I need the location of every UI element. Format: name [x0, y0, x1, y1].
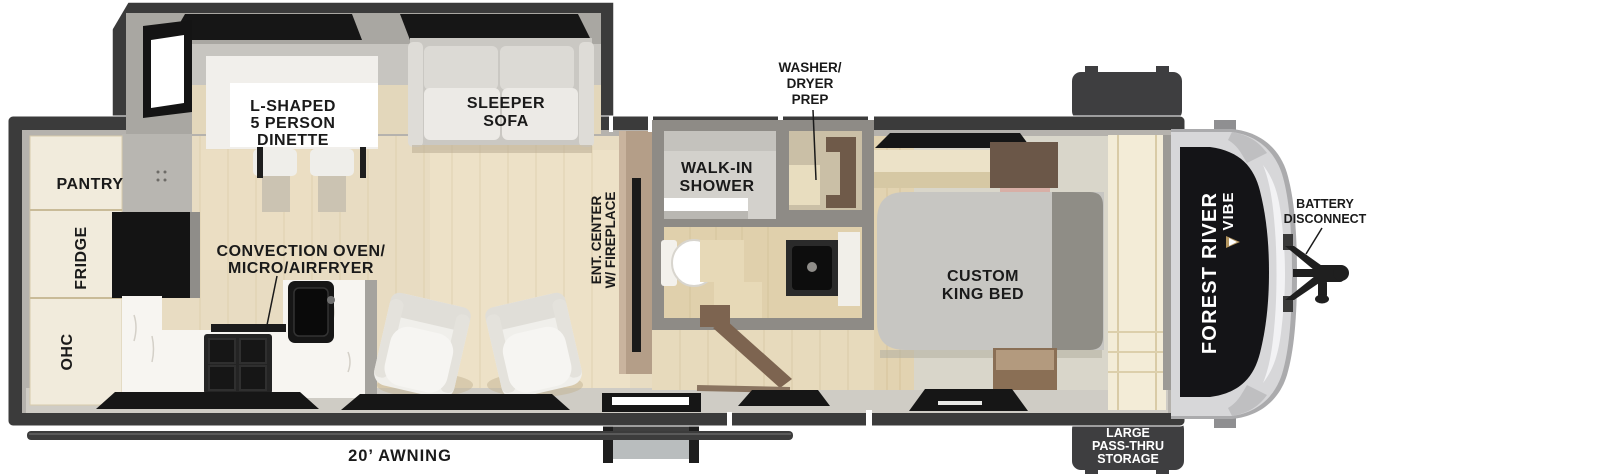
svg-text:DINETTE: DINETTE: [257, 132, 329, 149]
svg-text:DISCONNECT: DISCONNECT: [1284, 212, 1367, 226]
svg-text:VIBE: VIBE: [1220, 191, 1237, 230]
svg-text:PREP: PREP: [792, 92, 829, 107]
svg-text:SHOWER: SHOWER: [680, 178, 755, 195]
svg-text:PANTRY: PANTRY: [57, 176, 124, 193]
svg-text:DRYER: DRYER: [787, 76, 834, 91]
svg-text:WASHER/: WASHER/: [778, 60, 841, 75]
svg-text:LARGE: LARGE: [1106, 426, 1150, 440]
svg-text:FOREST RIVER: FOREST RIVER: [1199, 192, 1221, 354]
svg-text:20’ AWNING: 20’ AWNING: [348, 447, 452, 465]
svg-text:L-SHAPED: L-SHAPED: [250, 98, 336, 115]
svg-text:OHC: OHC: [59, 333, 76, 370]
svg-text:FRIDGE: FRIDGE: [73, 226, 90, 289]
svg-text:SLEEPER: SLEEPER: [467, 95, 545, 112]
svg-text:PASS-THRU: PASS-THRU: [1092, 439, 1164, 453]
svg-text:STORAGE: STORAGE: [1097, 452, 1159, 466]
svg-text:CUSTOM: CUSTOM: [947, 268, 1019, 285]
svg-text:W/ FIREPLACE: W/ FIREPLACE: [603, 192, 618, 289]
svg-text:KING BED: KING BED: [942, 286, 1024, 303]
svg-text:ENT. CENTER: ENT. CENTER: [589, 195, 604, 284]
svg-text:WALK-IN: WALK-IN: [681, 160, 753, 177]
svg-text:MICRO/AIRFRYER: MICRO/AIRFRYER: [228, 260, 374, 277]
svg-text:CONVECTION OVEN/: CONVECTION OVEN/: [217, 243, 386, 260]
svg-text:SOFA: SOFA: [483, 113, 529, 130]
svg-text:5 PERSON: 5 PERSON: [251, 115, 336, 132]
svg-text:BATTERY: BATTERY: [1296, 197, 1354, 211]
